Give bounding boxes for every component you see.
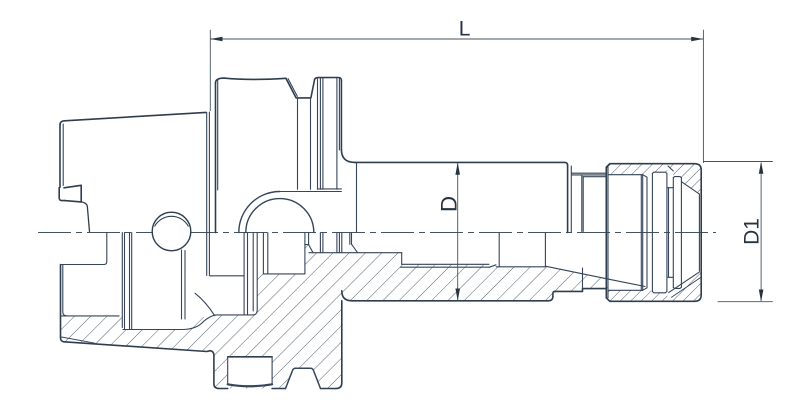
svg-text:D1: D1 [741,218,764,245]
svg-text:D: D [437,196,462,212]
svg-text:L: L [459,17,471,40]
